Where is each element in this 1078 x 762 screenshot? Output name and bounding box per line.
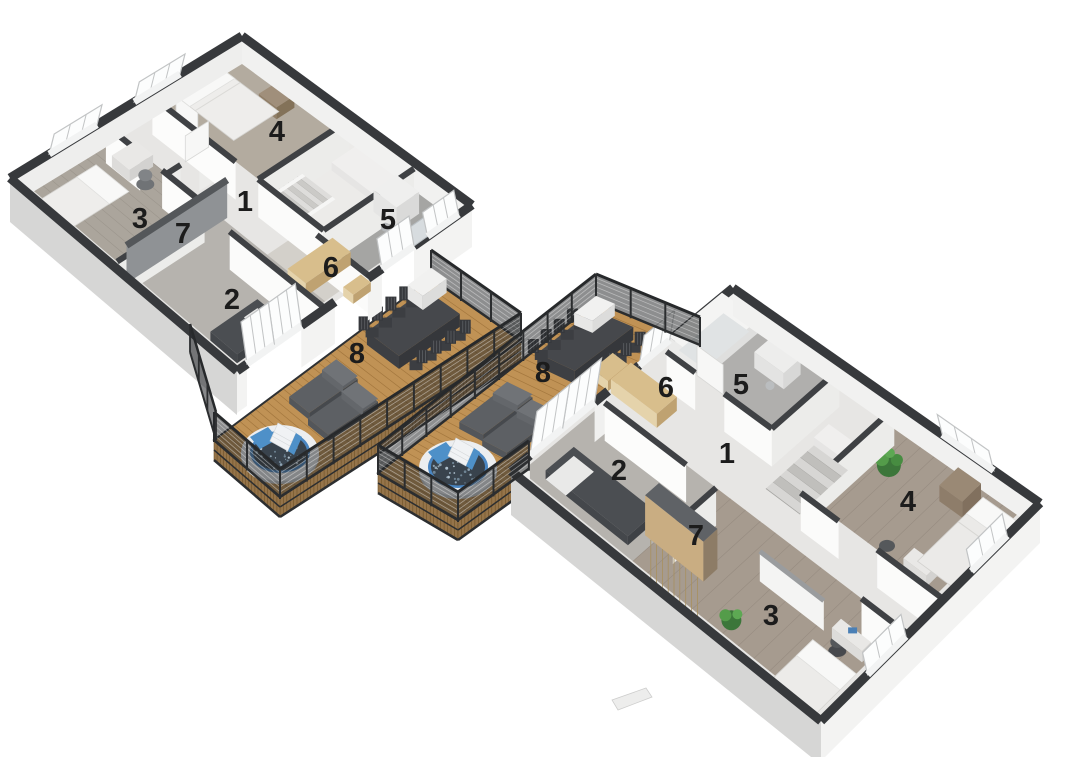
svg-text:5: 5: [380, 204, 396, 236]
svg-text:1: 1: [719, 438, 735, 470]
svg-text:4: 4: [269, 116, 285, 148]
svg-text:5: 5: [733, 369, 749, 401]
svg-text:4: 4: [900, 486, 916, 518]
svg-text:6: 6: [323, 252, 339, 284]
svg-text:2: 2: [224, 284, 240, 316]
svg-text:7: 7: [688, 520, 704, 552]
svg-text:8: 8: [535, 357, 551, 389]
svg-text:8: 8: [349, 338, 365, 370]
svg-text:2: 2: [611, 455, 627, 487]
svg-text:3: 3: [132, 203, 148, 235]
svg-text:3: 3: [763, 600, 779, 632]
svg-text:1: 1: [237, 186, 253, 218]
svg-text:6: 6: [658, 372, 674, 404]
svg-text:7: 7: [175, 218, 191, 250]
